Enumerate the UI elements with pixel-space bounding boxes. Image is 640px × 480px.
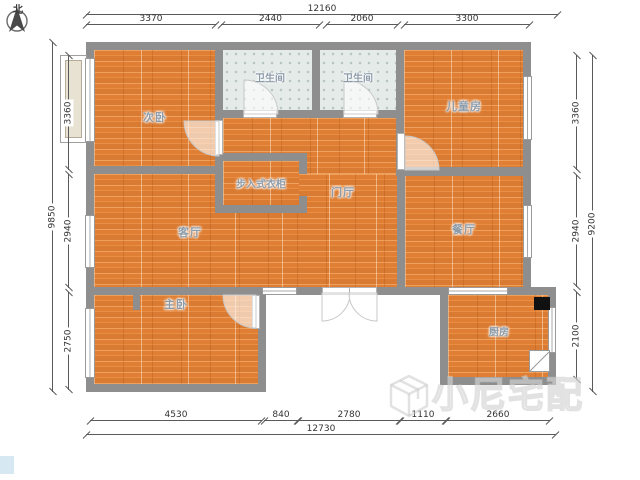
room-label-bathroom-2: 卫生间 xyxy=(343,70,373,85)
kitchen-flue xyxy=(534,297,550,310)
room-label-foyer: 门厅 xyxy=(331,184,355,200)
wall-bathroom-divider xyxy=(312,42,320,118)
dim-top-seg-4: 3300 xyxy=(404,24,530,25)
wall-closet-right-lower xyxy=(299,196,307,213)
partial-logo xyxy=(0,456,14,474)
window-dining-kitchen xyxy=(448,287,508,295)
floor-secondary-bedroom xyxy=(94,50,215,166)
wall-top xyxy=(86,42,531,50)
kitchen-corner-unit xyxy=(529,350,550,372)
door-arc-entry-right xyxy=(349,293,377,321)
dim-top-seg-1: 3370 xyxy=(86,24,216,25)
door-leaf-secondary-bedroom xyxy=(215,120,223,155)
dim-bottom-total: 12730 xyxy=(86,434,556,435)
dim-left-seg-2: 2940 xyxy=(68,174,69,288)
north-label: 北 xyxy=(8,1,28,16)
room-label-kitchen: 厨房 xyxy=(489,324,509,339)
door-leaf-master-bedroom xyxy=(252,295,260,329)
wall-closet-bottom xyxy=(215,205,307,213)
room-label-master-bedroom: 主卧 xyxy=(164,296,188,312)
door-arc-entry-left xyxy=(322,293,350,321)
dim-left-seg-1: 3360 xyxy=(68,55,69,170)
watermark-cube-icon xyxy=(386,372,432,420)
wall-kids-room-bottom xyxy=(396,167,531,176)
dim-bottom-seg-3: 2780 xyxy=(298,420,400,421)
watermark: 小尼宅配 xyxy=(386,372,584,420)
door-leaf-entry-right xyxy=(349,287,377,295)
wall-closet-top xyxy=(215,153,307,161)
door-leaf-entry-left xyxy=(322,287,350,295)
dim-bottom-seg-5: 2660 xyxy=(446,420,550,421)
wall-closet-left xyxy=(215,153,223,213)
window-dining-room xyxy=(523,205,532,258)
room-label-living-room: 客厅 xyxy=(178,224,202,240)
dim-left-total: 9850 xyxy=(52,42,53,392)
dim-right-seg-2: 2940 xyxy=(576,175,577,287)
window-living-room xyxy=(85,215,95,268)
room-label-kids-room: 儿童房 xyxy=(446,98,482,114)
window-secondary-bedroom xyxy=(85,58,95,142)
dim-right-seg-1: 3360 xyxy=(576,55,577,170)
door-leaf-kids-room xyxy=(397,133,405,170)
dim-bottom-seg-4: 1110 xyxy=(400,420,446,421)
dim-bottom-seg-2: 840 xyxy=(264,420,298,421)
watermark-text: 小尼宅配 xyxy=(432,378,584,414)
wall-master-stub xyxy=(133,295,140,310)
room-label-bathroom-1: 卫生间 xyxy=(255,70,285,85)
door-leaf-bathroom-1 xyxy=(243,110,277,118)
wall-foyer-dining-divider xyxy=(397,175,405,295)
dim-right-seg-3: 2100 xyxy=(576,292,577,380)
floor-plan-page: { "compass": { "label": "北" }, "rooms": … xyxy=(0,0,640,480)
dim-bottom-seg-1: 4530 xyxy=(90,420,262,421)
wall-secondary-bedroom-bottom xyxy=(86,166,223,174)
window-master-bedroom xyxy=(85,308,95,378)
door-leaf-bathroom-2 xyxy=(343,110,377,118)
dim-top-seg-2: 2440 xyxy=(221,24,320,25)
room-label-walk-in-closet: 步入式衣柜 xyxy=(236,176,286,191)
dim-left-seg-3: 2750 xyxy=(68,292,69,390)
wall-master-bottom xyxy=(86,384,266,392)
window-kitchen xyxy=(548,307,556,353)
dim-top-seg-3: 2060 xyxy=(326,24,398,25)
room-label-dining-room: 餐厅 xyxy=(452,221,476,237)
dim-right-total: 9200 xyxy=(592,55,593,392)
window-living-bottom xyxy=(262,287,297,295)
window-kids-room xyxy=(523,76,532,140)
wall-closet-right-upper xyxy=(299,153,307,174)
room-label-secondary-bedroom: 次卧 xyxy=(143,109,167,125)
